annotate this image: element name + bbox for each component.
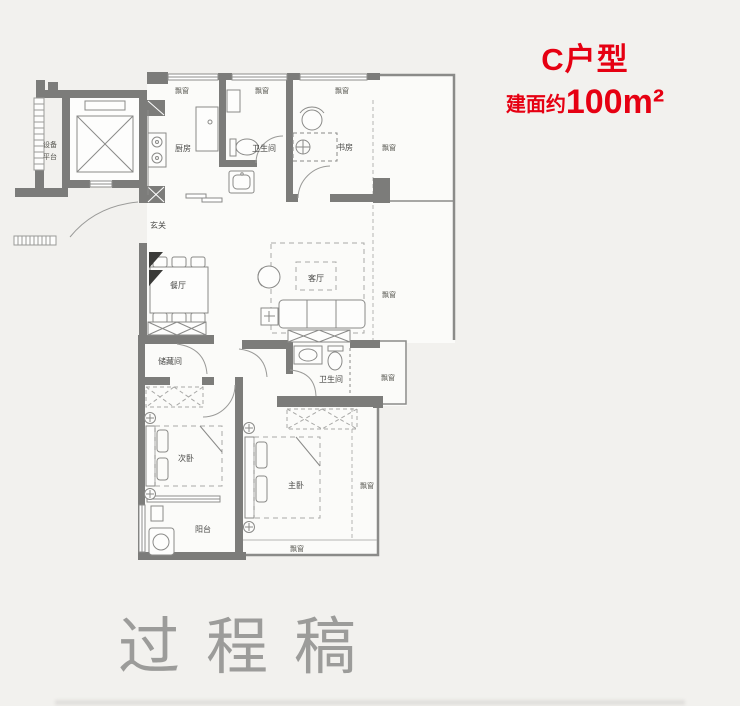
label-bay-window: 飘窗 <box>175 86 189 95</box>
title-block: C户型 建面约100m² <box>470 44 700 122</box>
label-bay-window: 飘窗 <box>381 373 395 382</box>
label-kitchen: 厨房 <box>175 143 191 153</box>
unit-area: 建面约100m² <box>470 83 700 122</box>
label-storage: 储藏间 <box>158 356 182 366</box>
unit-area-value: 100m² <box>566 83 664 121</box>
label-bay-window: 飘窗 <box>335 86 349 95</box>
stove-icon <box>148 133 166 167</box>
label-equipment-platform-1: 设备 <box>43 140 57 149</box>
label-bathroom-upper: 卫生间 <box>252 143 276 153</box>
shoe-cabinet <box>148 322 206 335</box>
bottom-edge-artifact <box>55 700 685 705</box>
label-foyer: 玄关 <box>150 220 166 230</box>
label-living: 客厅 <box>308 273 324 283</box>
label-dining: 餐厅 <box>170 281 186 290</box>
dining-table <box>150 257 208 323</box>
unit-title: C户型 <box>470 44 700 77</box>
label-bay-window: 飘窗 <box>290 544 304 553</box>
label-equipment-platform-2: 平台 <box>43 152 57 161</box>
label-balcony: 阳台 <box>195 524 211 534</box>
label-bedroom-second: 次卧 <box>178 453 194 463</box>
label-bathroom-lower: 卫生间 <box>319 374 343 384</box>
label-bay-window: 飘窗 <box>360 481 374 490</box>
label-bay-window: 飘窗 <box>382 143 396 152</box>
corridor-hatch <box>14 236 56 245</box>
unit-area-prefix: 建面约 <box>506 94 566 116</box>
washbasin-icon <box>229 171 254 193</box>
label-bay-window: 飘窗 <box>255 86 269 95</box>
watermark-text: 过程稿 <box>118 596 418 686</box>
label-bay-window: 飘窗 <box>382 290 396 299</box>
label-bedroom-master: 主卧 <box>288 480 304 490</box>
label-study: 书房 <box>337 142 353 152</box>
